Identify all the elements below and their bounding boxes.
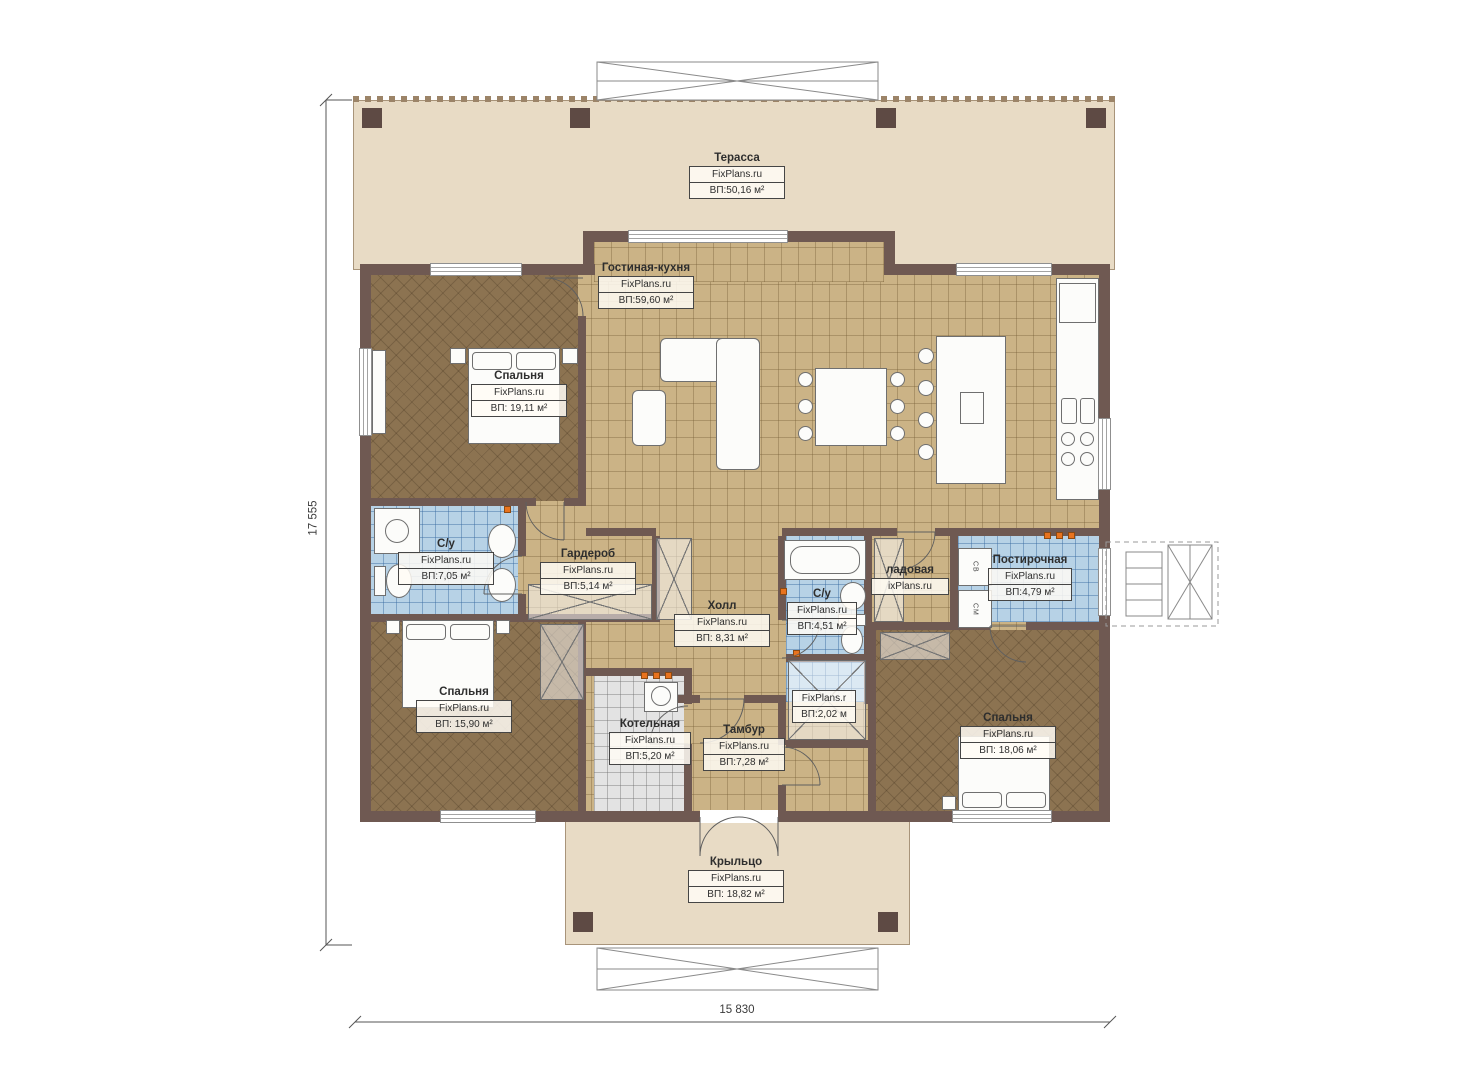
room-brand: FixPlans.ru (688, 870, 784, 887)
side-entry-annex (1106, 542, 1218, 626)
width-dimension-label: 15 830 (690, 1004, 784, 1016)
room-area: ВП:5,14 м² (540, 578, 636, 595)
floor-plan: СВ СМ (0, 0, 1474, 1080)
roof-gable-bottom (597, 948, 878, 990)
room-brand: FixPlans.ru (703, 738, 785, 755)
room-brand: FixPlans.ru (960, 726, 1056, 743)
room-name: С/у (398, 538, 494, 550)
room-name: Терасса (689, 152, 785, 164)
room-label-bedroom-3: Спальня FixPlans.ru ВП: 18,06 м² (960, 712, 1056, 759)
room-label-living-kitchen: Гостиная-кухня FixPlans.ru ВП:59,60 м² (598, 262, 694, 309)
room-area: ВП: 19,11 м² (471, 400, 567, 417)
room-name: Гостиная-кухня (598, 262, 694, 274)
room-label-laundry: Постирочная FixPlans.ru ВП:4,79 м² (988, 554, 1072, 601)
room-label-bathroom-1: С/у FixPlans.ru ВП:7,05 м² (398, 538, 494, 585)
room-label-vestibule: Тамбур FixPlans.ru ВП:7,28 м² (703, 724, 785, 771)
room-brand: FixPlans.ru (471, 384, 567, 401)
room-label-bedroom-1: Спальня FixPlans.ru ВП: 19,11 м² (471, 370, 567, 417)
room-area: ВП:59,60 м² (598, 292, 694, 309)
room-name: Гардероб (540, 548, 636, 560)
room-label-closet: FixPlans.r ВП:2,02 м (792, 690, 856, 723)
room-label-terrace: Терасса FixPlans.ru ВП:50,16 м² (689, 152, 785, 199)
room-brand: FixPlans.ru (689, 166, 785, 183)
room-brand: FixPlans.ru (416, 700, 512, 717)
room-area: ВП:4,79 м² (988, 584, 1072, 601)
room-name: ладовая (871, 564, 949, 576)
room-area: ВП:5,20 м² (609, 748, 691, 765)
room-name: С/у (787, 588, 857, 600)
room-name: Холл (674, 600, 770, 612)
room-name: Спальня (416, 686, 512, 698)
room-label-pantry: ладовая ixPlans.ru (871, 564, 949, 595)
room-brand: FixPlans.ru (674, 614, 770, 631)
room-area: ВП: 18,82 м² (688, 886, 784, 903)
room-label-porch: Крыльцо FixPlans.ru ВП: 18,82 м² (688, 856, 784, 903)
room-brand: FixPlans.ru (398, 552, 494, 569)
room-area: ВП: 18,06 м² (960, 742, 1056, 759)
room-label-bathroom-2: С/у FixPlans.ru ВП:4,51 м² (787, 588, 857, 635)
room-area: ВП:2,02 м (792, 706, 856, 723)
room-area: ВП: 15,90 м² (416, 716, 512, 733)
room-area: ВП:7,05 м² (398, 568, 494, 585)
room-label-bedroom-2: Спальня FixPlans.ru ВП: 15,90 м² (416, 686, 512, 733)
room-brand: ixPlans.ru (871, 578, 949, 595)
roof-gable-top (597, 62, 878, 100)
room-brand: FixPlans.ru (598, 276, 694, 293)
room-name: Спальня (471, 370, 567, 382)
room-brand: FixPlans.ru (787, 602, 857, 619)
room-area: ВП:7,28 м² (703, 754, 785, 771)
room-brand: FixPlans.ru (988, 568, 1072, 585)
room-label-wardrobe: Гардероб FixPlans.ru ВП:5,14 м² (540, 548, 636, 595)
room-label-boiler: Котельная FixPlans.ru ВП:5,20 м² (609, 718, 691, 765)
room-area: ВП:4,51 м² (787, 618, 857, 635)
room-name: Спальня (960, 712, 1056, 724)
room-brand: FixPlans.ru (540, 562, 636, 579)
room-brand: FixPlans.r (792, 690, 856, 707)
room-area: ВП: 8,31 м² (674, 630, 770, 647)
room-name: Постирочная (988, 554, 1072, 566)
room-name: Крыльцо (688, 856, 784, 868)
room-name: Котельная (609, 718, 691, 730)
height-dimension-label: 17 555 (308, 500, 320, 535)
room-area: ВП:50,16 м² (689, 182, 785, 199)
room-brand: FixPlans.ru (609, 732, 691, 749)
room-label-hall: Холл FixPlans.ru ВП: 8,31 м² (674, 600, 770, 647)
room-name: Тамбур (703, 724, 785, 736)
